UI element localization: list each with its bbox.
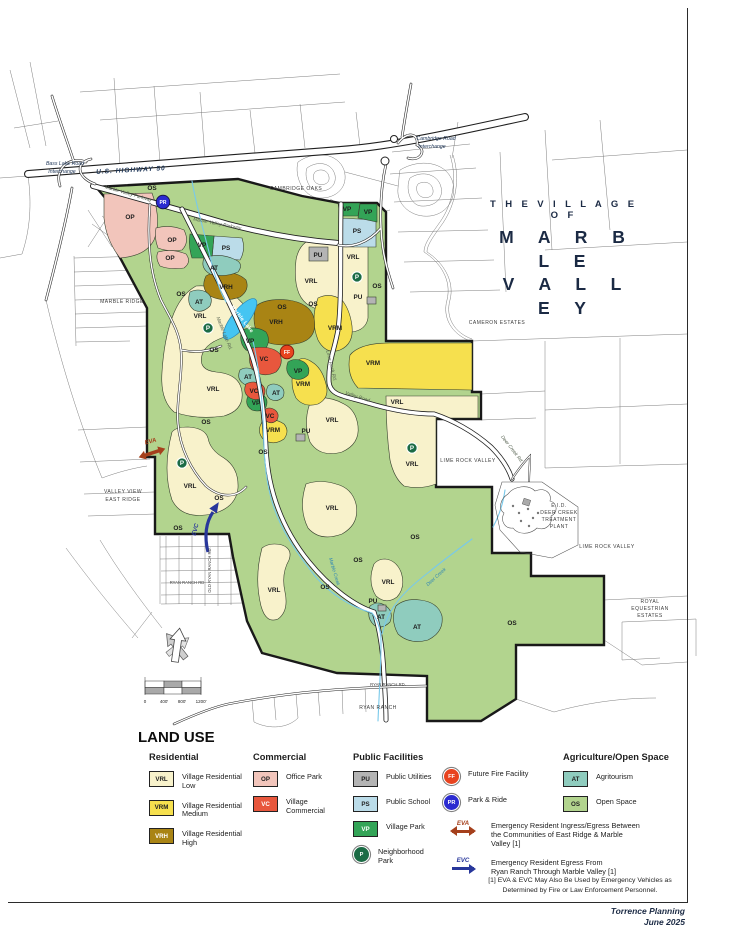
map-label: LIME ROCK VALLEY — [579, 544, 635, 550]
map-label: PU — [302, 428, 311, 435]
legend-circle-FF: FF — [443, 768, 460, 785]
map-label: VC — [250, 388, 259, 395]
legend-swatch-AT: AT — [563, 771, 588, 787]
map-label: OS — [201, 419, 211, 426]
map-label: PU — [369, 598, 378, 605]
legend-arrow-label: EVA — [457, 821, 469, 827]
legend-item-EVA: EVAEmergency Resident Ingress/Egress Bet… — [443, 820, 643, 848]
map-title-line-valley: V A L L E Y — [488, 273, 646, 320]
map-label: RYAN RANCH RD — [170, 580, 205, 585]
map-title-kicker: T H E V I L L A G E O F — [488, 199, 639, 221]
map-label: EQUESTRIAN — [631, 606, 669, 612]
map-label: 0 — [144, 699, 147, 704]
legend-item-label: NeighborhoodPark — [378, 846, 424, 866]
legend-group-title: Commercial — [253, 752, 365, 762]
map-label: 400' — [160, 699, 169, 704]
map-label: Interchange — [418, 144, 446, 150]
map-label: OS — [372, 283, 382, 290]
map-label: VALLEY VIEW — [104, 489, 142, 495]
legend-item-label: Public School — [386, 796, 430, 807]
map-label: OS — [209, 347, 219, 354]
legend-item-label: Agritourism — [596, 771, 633, 782]
map-label: PLANT — [550, 524, 569, 530]
legend-title: LAND USE — [138, 729, 215, 746]
page-border-bottom — [8, 902, 688, 903]
map-label: VRL — [268, 587, 281, 594]
legend-item-label: Village ResidentialMedium — [182, 800, 242, 820]
map-label: Interchange — [48, 169, 76, 175]
legend-circle-PR: PR — [443, 794, 460, 811]
legend-item-OS: OSOpen Space — [563, 796, 675, 812]
legend-swatch-VC: VC — [253, 796, 278, 812]
map-label: VRL — [391, 399, 404, 406]
map-label: VRL — [347, 254, 360, 261]
map-label: VC — [260, 356, 269, 363]
legend-group-title: Public Facilities — [353, 752, 465, 762]
map-label: EAST RIDGE — [105, 497, 140, 503]
footnote-line-2: Determined by Fire or Law Enforcement Pe… — [468, 886, 692, 896]
map-label: OLD RYAN RANCH RD. — [207, 547, 212, 592]
map-label: OP — [167, 237, 177, 244]
legend-item-OP: OPOffice Park — [253, 771, 365, 787]
legend-swatch-PU: PU — [353, 771, 378, 787]
marker-letter: P — [180, 460, 184, 467]
map-label: VP — [246, 338, 255, 345]
map-label: RYAN RANCH RD. — [370, 682, 406, 687]
map-label: TREATMENT — [542, 517, 577, 523]
legend-item-label: Future Fire Facility — [468, 768, 528, 779]
legend-item-label: Park & Ride — [468, 794, 507, 805]
map-label: E.I.D. — [551, 503, 567, 509]
credit-author: Torrence Planning — [611, 906, 685, 917]
legend-swatch-VRM: VRM — [149, 800, 174, 816]
map-label: OP — [125, 214, 135, 221]
map-label: AT — [377, 614, 385, 621]
eva-arrow-icon — [452, 830, 474, 833]
legend-item-AT: ATAgritourism — [563, 771, 675, 787]
map-page: PRFFPPPP OSOSOSOSOSOSOSOSOSOSOSOSOSOSVRL… — [0, 0, 731, 949]
legend-item-VC: VCVillageCommercial — [253, 796, 365, 816]
map-label: AT — [272, 390, 280, 397]
map-label: PS — [222, 245, 231, 252]
map-label: PU — [314, 252, 323, 259]
map-label: CAMBRIDGE OAKS — [270, 186, 323, 192]
map-label: Bass Lake Road — [46, 161, 85, 167]
footnote-line-1: [1] EVA & EVC May Also Be Used by Emerge… — [468, 876, 692, 886]
map-label: 800' — [178, 699, 187, 704]
legend-item-label: Emergency Resident Egress FromRyan Ranch… — [491, 857, 616, 877]
map-label: AT — [413, 624, 421, 631]
map-label: VRH — [269, 319, 283, 326]
evc-arrow-icon — [452, 867, 474, 870]
marker-letter: P — [410, 445, 414, 452]
map-label: VRL — [184, 483, 197, 490]
legend-circle-P: P — [353, 846, 370, 863]
map-label: ROYAL — [640, 599, 659, 605]
legend-item-EVC: EVCEmergency Resident Egress FromRyan Ra… — [443, 857, 643, 877]
map-label: AT — [244, 374, 252, 381]
legend-footnote: [1] EVA & EVC May Also Be Used by Emerge… — [468, 876, 692, 895]
legend-item-label: Office Park — [286, 771, 322, 782]
map-label: VRL — [207, 386, 220, 393]
marker-letter: FF — [284, 350, 290, 356]
map-label: OP — [165, 255, 175, 262]
map-label: VP — [252, 400, 261, 407]
map-label: VRH — [219, 284, 233, 291]
map-label: DEER CREEK — [540, 510, 578, 516]
legend-group-agriculture-open-space: Agriculture/Open SpaceATAgritourismOSOpe… — [563, 752, 675, 821]
legend-arrow-EVA: EVA — [443, 820, 483, 833]
map-label: ESTATES — [637, 613, 663, 619]
map-label: VRM — [328, 325, 342, 332]
map-label: VRM — [296, 381, 310, 388]
legend-item-label: VillageCommercial — [286, 796, 325, 816]
map-label: PU — [354, 294, 363, 301]
map-label: VRM — [266, 427, 280, 434]
map-title: T H E V I L L A G E O F M A R B L E V A … — [488, 199, 636, 321]
map-title-line-marble: M A R B L E — [488, 226, 646, 273]
legend-swatch-VRL: VRL — [149, 771, 174, 787]
marker-letter: PR — [160, 200, 167, 206]
legend-item-label: Village ResidentialLow — [182, 771, 242, 791]
map-label: PS — [353, 228, 362, 235]
legend-arrow-EVC: EVC — [443, 857, 483, 870]
map-label: OS — [320, 584, 330, 591]
map-label: VRL — [382, 579, 395, 586]
map-label: MARBLE RIDGE — [100, 299, 144, 305]
map-label: 1200' — [196, 699, 207, 704]
map-label: AT — [195, 299, 203, 306]
map-label: VRL — [194, 313, 207, 320]
legend-item-VRM: VRMVillage ResidentialMedium — [149, 800, 261, 820]
legend-swatch-OP: OP — [253, 771, 278, 787]
map-label: VRL — [406, 461, 419, 468]
map-label: RYAN RANCH — [359, 705, 397, 711]
map-label: OS — [147, 185, 157, 192]
page-border-right — [687, 8, 688, 903]
map-label: VP — [343, 206, 352, 213]
map-label: OS — [176, 291, 186, 298]
legend-group-residential: ResidentialVRLVillage ResidentialLowVRMV… — [149, 752, 261, 857]
legend-swatch-OS: OS — [563, 796, 588, 812]
map-label: VP — [198, 242, 207, 249]
legend-item-label: Public Utilities — [386, 771, 431, 782]
map-label: CAMERON ESTATES — [469, 320, 526, 326]
legend-group-title: Residential — [149, 752, 261, 762]
map-label: AT — [210, 265, 218, 272]
legend-group-commercial: CommercialOPOffice ParkVCVillageCommerci… — [253, 752, 365, 825]
map-label: OS — [258, 449, 268, 456]
map-label: OS — [507, 620, 517, 627]
map-label: OS — [173, 525, 183, 532]
legend-swatch-VRH: VRH — [149, 828, 174, 844]
map-label: OS — [410, 534, 420, 541]
legend-item-label: Village ResidentialHigh — [182, 828, 242, 848]
map-label: OS — [214, 495, 224, 502]
legend-swatch-PS: PS — [353, 796, 378, 812]
map-label: Cambridge Road — [416, 136, 456, 142]
legend-arrow-label: EVC — [457, 858, 470, 864]
legend-item-label: Emergency Resident Ingress/Egress Betwee… — [491, 820, 643, 848]
north-arrow-icon — [161, 627, 192, 663]
map-label: OS — [277, 304, 287, 311]
legend-item-label: Village Park — [386, 821, 425, 832]
credit-date: June 2025 — [611, 917, 685, 928]
marker-letter: P — [206, 325, 210, 332]
credit: Torrence Planning June 2025 — [611, 906, 685, 928]
map-label: VP — [294, 368, 303, 375]
map-label: OS — [308, 301, 318, 308]
map-label: VRL — [326, 417, 339, 424]
map-label: VC — [266, 413, 275, 420]
map-label: VRL — [305, 278, 318, 285]
legend-item-VRH: VRHVillage ResidentialHigh — [149, 828, 261, 848]
map-label: VRM — [366, 360, 380, 367]
map-label: VP — [364, 209, 373, 216]
map-label: LIME ROCK VALLEY — [440, 458, 496, 464]
legend-item-label: Open Space — [596, 796, 637, 807]
map-label: VRL — [326, 505, 339, 512]
marker-letter: P — [355, 274, 359, 281]
map-label: OS — [353, 557, 363, 564]
legend-swatch-VP: VP — [353, 821, 378, 837]
scale-bar — [145, 677, 201, 695]
legend-item-VRL: VRLVillage ResidentialLow — [149, 771, 261, 791]
legend-group-title: Agriculture/Open Space — [563, 752, 675, 762]
